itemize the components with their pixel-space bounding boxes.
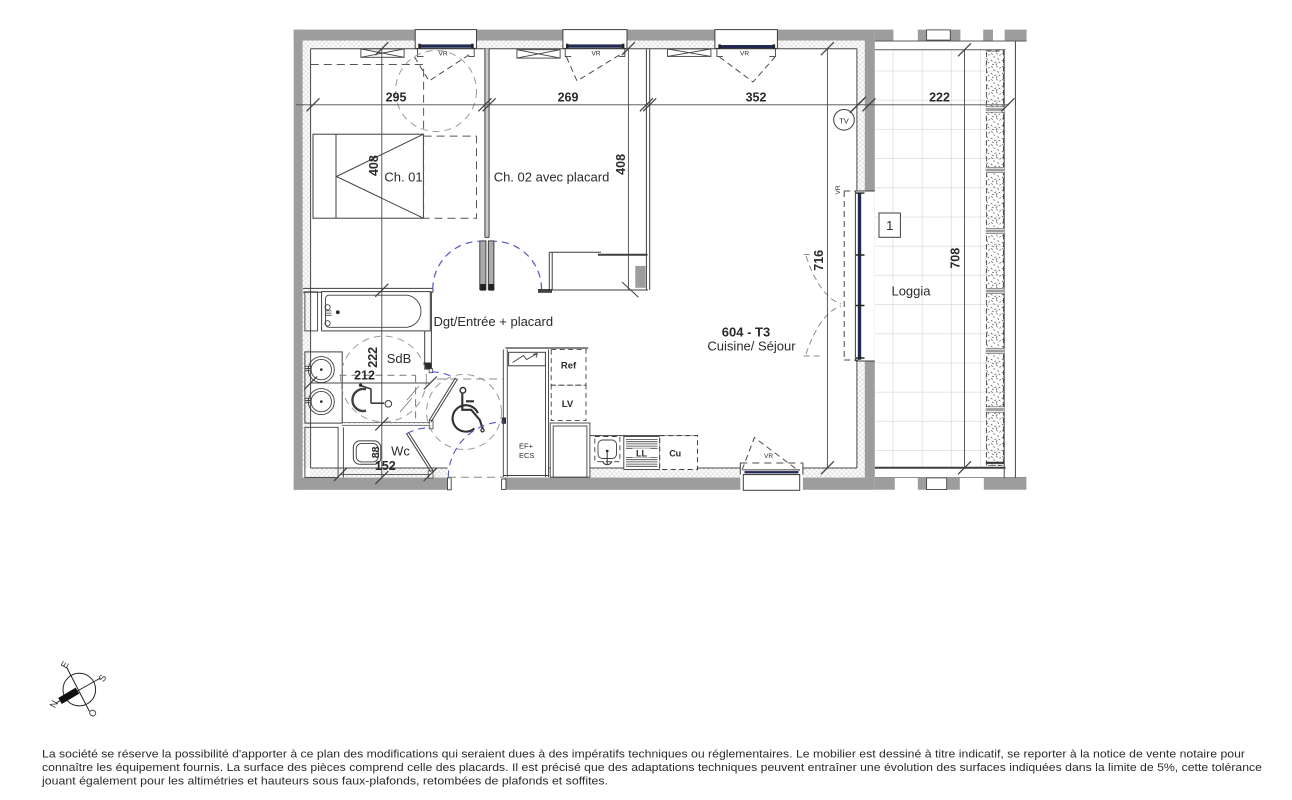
svg-text:VR: VR: [591, 50, 600, 57]
svg-text:LL: LL: [636, 449, 647, 459]
svg-text:Ch. 02 avec placard: Ch. 02 avec placard: [494, 170, 610, 185]
svg-text:connaître les équipement fourn: connaître les équipement fournis. La sur…: [42, 762, 1262, 774]
svg-text:E: E: [59, 660, 72, 671]
svg-text:TV: TV: [839, 116, 849, 125]
svg-text:716: 716: [812, 250, 826, 271]
svg-text:S: S: [97, 673, 110, 684]
svg-text:295: 295: [386, 90, 407, 104]
svg-text:408: 408: [614, 154, 628, 175]
svg-text:708: 708: [948, 248, 962, 269]
svg-text:ECS: ECS: [519, 451, 534, 460]
svg-text:Cu: Cu: [669, 449, 681, 459]
svg-text:Loggia: Loggia: [891, 284, 931, 299]
svg-text:222: 222: [929, 90, 950, 104]
svg-text:EF+: EF+: [519, 442, 534, 451]
svg-text:408: 408: [367, 155, 381, 176]
svg-text:88: 88: [370, 446, 382, 458]
svg-text:604 - T3: 604 - T3: [722, 325, 770, 340]
svg-text:Wc: Wc: [391, 444, 410, 459]
svg-text:Ref: Ref: [561, 361, 577, 372]
svg-text:La société se réserve la possi: La société se réserve la possibilité d'a…: [42, 749, 1245, 761]
svg-text:VR: VR: [835, 185, 842, 194]
svg-text:N: N: [48, 699, 61, 710]
svg-text:Dgt/Entrée + placard: Dgt/Entrée + placard: [434, 314, 554, 329]
svg-text:jouant également pour les alti: jouant également pour les altimétries et…: [41, 776, 608, 788]
svg-text:152: 152: [375, 459, 396, 473]
svg-text:212: 212: [354, 369, 375, 383]
svg-text:LV: LV: [562, 399, 574, 410]
svg-text:O: O: [87, 708, 100, 720]
svg-text:VR: VR: [764, 453, 773, 460]
svg-text:Cuisine/ Séjour: Cuisine/ Séjour: [707, 339, 796, 354]
svg-text:269: 269: [558, 90, 579, 104]
svg-text:VR: VR: [740, 51, 749, 58]
svg-text:352: 352: [746, 90, 767, 104]
svg-text:222: 222: [366, 347, 380, 368]
svg-text:1: 1: [886, 218, 893, 233]
svg-text:Ch. 01: Ch. 01: [384, 170, 422, 185]
svg-text:SdB: SdB: [387, 351, 412, 366]
